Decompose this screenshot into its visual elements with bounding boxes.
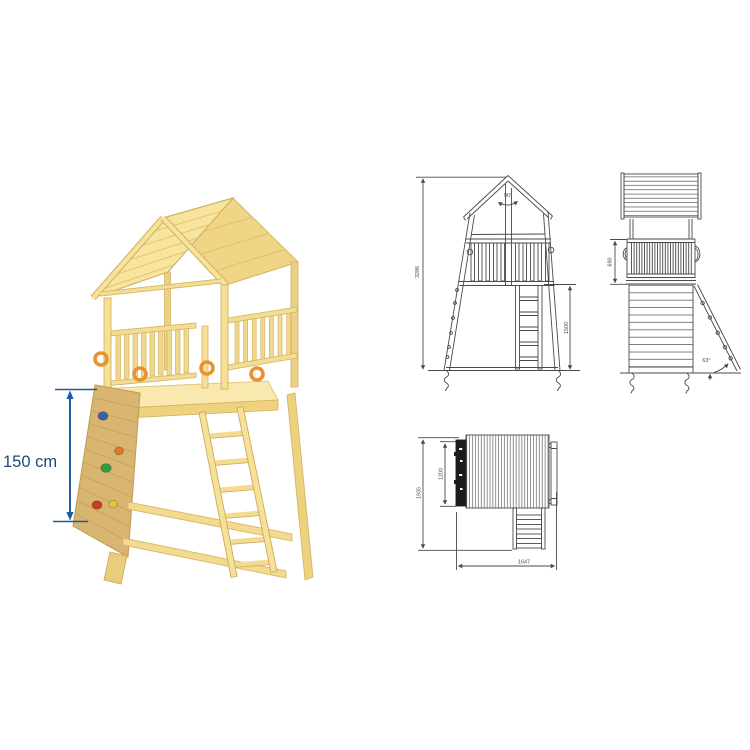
railing-height-dim-label: 690 — [608, 258, 614, 267]
render-3d-svg: 150 cm — [0, 185, 340, 605]
top-view-linework — [418, 435, 557, 570]
left-leg-foot — [104, 552, 127, 584]
access-ladder — [199, 407, 277, 578]
arrow-down-head — [66, 512, 73, 521]
side-view-drawing: 690 63° — [598, 160, 748, 400]
overall-depth-dim-label: 1935 — [417, 487, 423, 499]
grab-ring — [251, 368, 263, 380]
front-view-svg: 90° 3286 1500 — [408, 160, 595, 400]
total-height-dim-label: 3286 — [415, 266, 421, 278]
ladder-angle-label: 63° — [702, 358, 710, 364]
side-view-linework — [610, 173, 741, 394]
product-render-3d: 150 cm — [0, 185, 340, 605]
climbing-wall — [73, 385, 140, 557]
gate-post — [202, 326, 208, 388]
arrow-up-head — [66, 391, 73, 400]
front-left-post — [104, 298, 111, 395]
platform-height-dim-label: 1500 — [564, 322, 570, 334]
climbing-hold-blue — [98, 412, 108, 420]
top-view-drawing: 1935 1200 1647 — [412, 422, 598, 605]
back-right-post — [291, 262, 298, 387]
climbing-hold-yellow — [109, 500, 117, 508]
climbing-hold-orange — [115, 447, 124, 455]
top-view-svg: 1935 1200 1647 — [412, 422, 598, 605]
height-dimension-label: 150 cm — [3, 453, 57, 471]
side-view-svg: 690 63° — [598, 160, 748, 400]
front-railing — [110, 323, 208, 388]
roof-angle-label: 90° — [504, 193, 512, 199]
wall-band — [454, 440, 466, 506]
front-right-post — [221, 285, 228, 389]
overall-width-dim-label: 1647 — [518, 560, 530, 566]
platform-width-dim-label: 1200 — [439, 468, 445, 480]
front-view-linework — [416, 176, 580, 392]
climbing-hold-red — [92, 501, 102, 509]
right-leg — [287, 393, 313, 580]
side-railing — [228, 307, 297, 370]
climbing-hold-green — [101, 464, 111, 473]
product-sheet: 150 cm — [0, 0, 750, 750]
front-view-drawing: 90° 3286 1500 — [408, 160, 595, 400]
